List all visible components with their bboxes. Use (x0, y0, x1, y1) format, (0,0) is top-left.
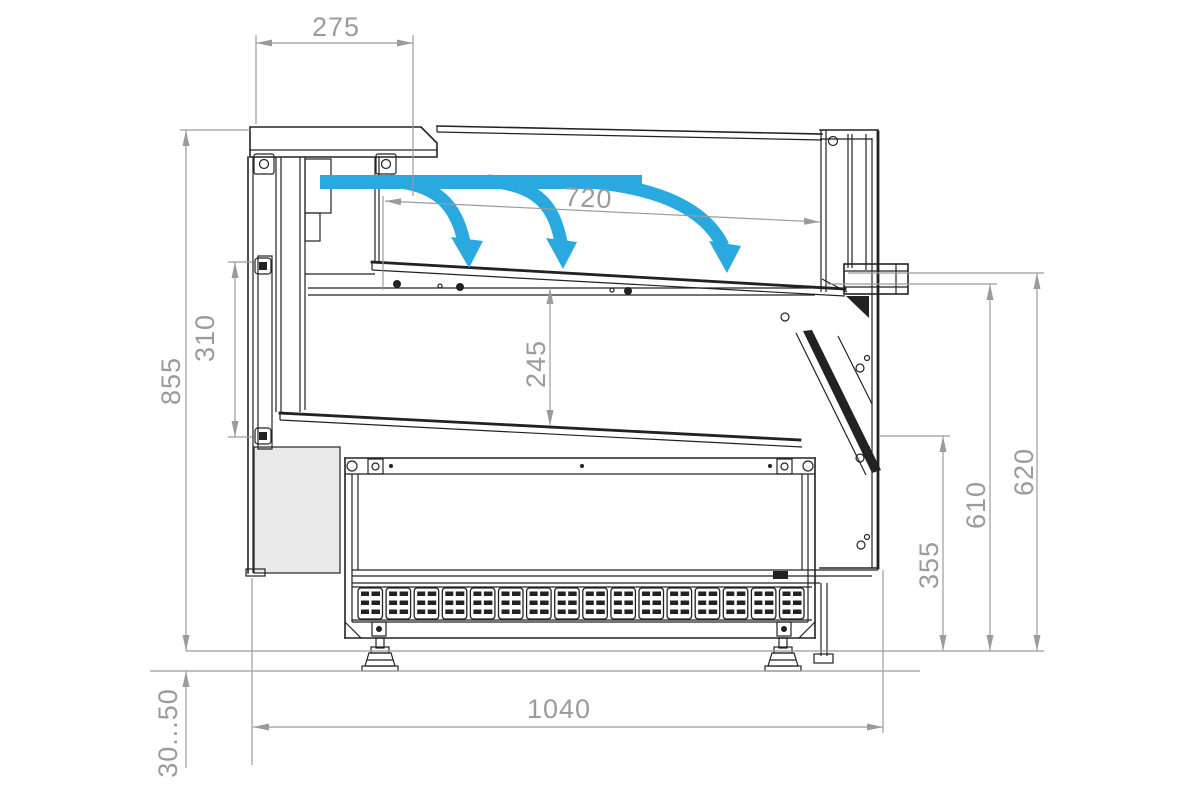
air-arrowhead-2-icon (546, 238, 577, 269)
adjustable-foot-left (362, 638, 398, 671)
dim-label-610: 610 (961, 481, 991, 529)
air-arrow-2 (488, 181, 561, 242)
dim-label-30-50: 30...50 (153, 688, 183, 778)
well-bottom-panel (280, 413, 802, 447)
dim-left-inner-height: 310 (190, 262, 235, 437)
dim-bottom-width: 1040 (253, 694, 883, 727)
front-sill (844, 264, 908, 318)
dim-label-855: 855 (156, 357, 186, 405)
air-arrow-1 (390, 181, 464, 242)
rating-badge (773, 571, 788, 579)
dim-label-1040: 1040 (527, 694, 591, 724)
dim-label-620: 620 (1009, 448, 1039, 496)
base-screws (347, 459, 813, 636)
rear-panel (255, 256, 272, 449)
sill-bracket (846, 296, 869, 318)
angled-front-panel (796, 330, 881, 475)
dim-label-275: 275 (312, 12, 360, 42)
top-glass-panel (437, 126, 822, 140)
dim-label-355: 355 (914, 541, 944, 589)
dim-label-720: 720 (564, 182, 613, 214)
dim-right-outer-height: 620 (1009, 273, 1039, 651)
extension-lines (150, 35, 1044, 765)
technical-drawing-page: 275 720 310 855 245 355 610 620 (0, 0, 1200, 800)
dim-top-width: 275 (256, 12, 413, 43)
technical-drawing: 275 720 310 855 245 355 610 620 (0, 0, 1200, 800)
dim-leg-height-range: 30...50 (153, 671, 186, 778)
canopy (250, 127, 437, 157)
louver-grille (358, 588, 804, 619)
air-arrowhead-3-icon (709, 241, 741, 273)
lower-left-panel (254, 447, 340, 573)
dim-label-310: 310 (190, 314, 220, 362)
front-wall-foot (814, 654, 833, 663)
adjustable-foot-right (765, 638, 801, 671)
dim-right-lower-height: 355 (914, 436, 944, 651)
air-arrowhead-1-icon (451, 237, 483, 268)
dim-label-245: 245 (521, 340, 551, 388)
dim-left-overall-height: 855 (156, 130, 186, 651)
dim-center-depth: 245 (521, 288, 551, 426)
display-deck (308, 262, 847, 296)
dim-right-middle-height: 610 (961, 284, 991, 651)
